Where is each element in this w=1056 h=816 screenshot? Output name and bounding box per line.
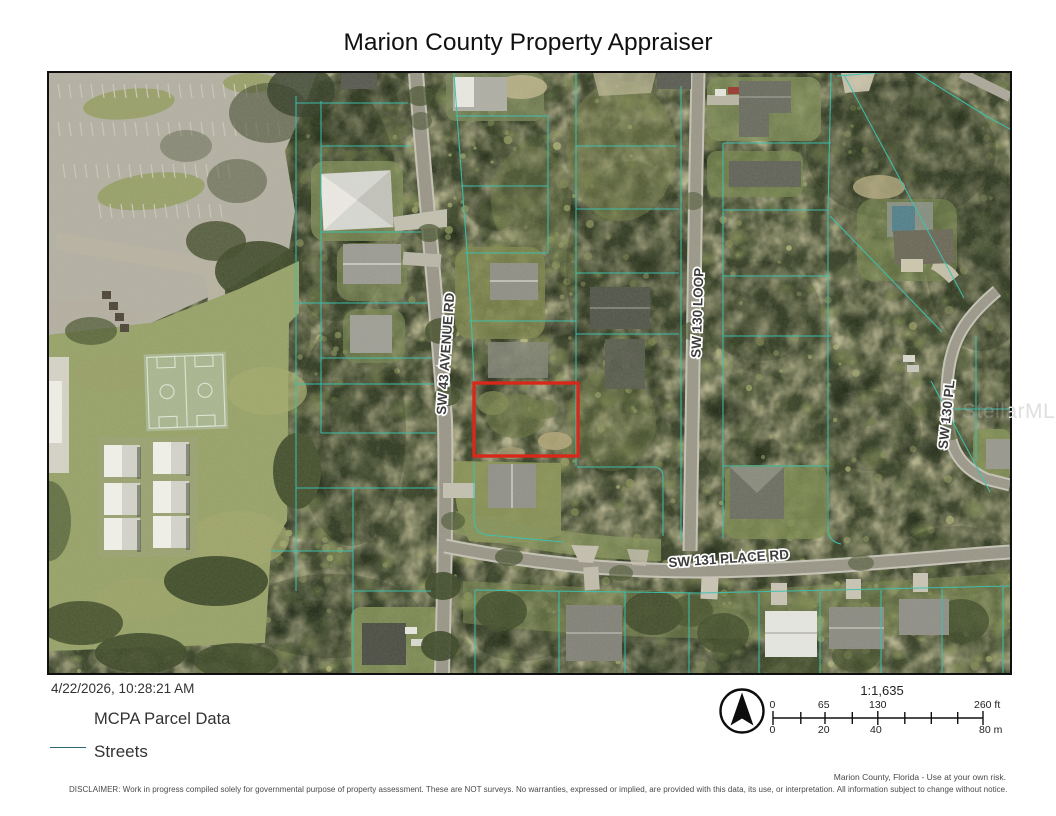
svg-text:SW 130 LOOP: SW 130 LOOP xyxy=(688,268,706,358)
